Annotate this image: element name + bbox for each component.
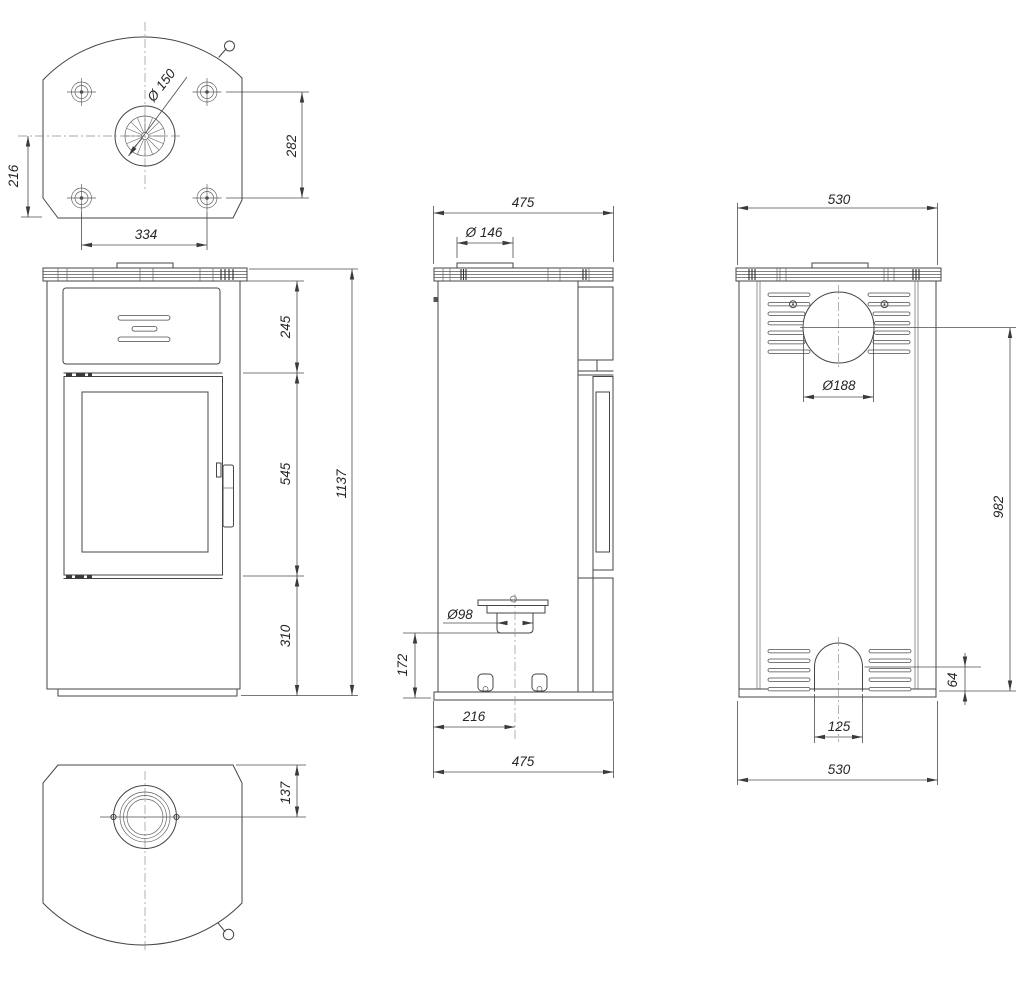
- dim-label-475-top: 475: [512, 195, 535, 210]
- dim-label-530-bottom: 530: [828, 762, 851, 777]
- top-view-outline: [43, 37, 242, 218]
- knob-icon: [223, 929, 233, 939]
- dim-label-282: 282: [284, 134, 299, 158]
- side-top-panel: [578, 287, 613, 360]
- flue-collar-side: [457, 263, 513, 268]
- base-side: [434, 692, 613, 700]
- dim-label-216-side: 216: [462, 709, 486, 724]
- door-glass: [82, 392, 208, 552]
- bolt-hole: [67, 78, 96, 106]
- dim-label-flue-diameter: Ø 150: [144, 66, 179, 106]
- vent-slot: [118, 337, 170, 342]
- dim-label-245: 245: [278, 315, 293, 339]
- dim-label-98: Ø98: [446, 607, 473, 622]
- plinth-front: [58, 689, 237, 696]
- air-inlet: [478, 596, 548, 633]
- door-handle: [223, 465, 234, 527]
- knob-stem: [218, 923, 225, 932]
- lower-vent-slots: [768, 650, 911, 691]
- stove-body-front: [47, 281, 240, 689]
- dim-label-188: Ø188: [821, 378, 856, 393]
- flue-collar-back: [812, 263, 868, 268]
- dim-label-137: 137: [278, 781, 293, 804]
- dim-label-216: 216: [6, 164, 21, 188]
- bolt-hole: [67, 184, 96, 212]
- dim-label-475-bottom: 475: [512, 754, 535, 769]
- upper-vent-panel: [63, 288, 220, 364]
- side-bottom-panel: [593, 578, 613, 692]
- vent-slot: [132, 327, 157, 332]
- hinge-marks: [66, 373, 92, 377]
- drawing-sheet: Ø 150 216 282 334: [0, 0, 1024, 984]
- technical-drawing: Ø 150 216 282 334: [0, 0, 1024, 984]
- flue-collar-front: [117, 263, 173, 268]
- dim-label-1137: 1137: [334, 469, 349, 499]
- top-view: Ø 150 216 282 334: [6, 22, 309, 250]
- hinge-marks: [66, 575, 92, 579]
- foot-bracket: [532, 674, 547, 692]
- side-view: 475 Ø 146 Ø98 172 216 475: [395, 195, 614, 778]
- dim-label-146: Ø 146: [465, 225, 503, 240]
- bolt-hole: [193, 184, 222, 212]
- bottom-view: 137: [43, 765, 306, 952]
- bolt-hole: [193, 78, 222, 106]
- dim-label-545: 545: [278, 462, 293, 485]
- door-latch: [217, 463, 222, 477]
- dim-label-310: 310: [278, 624, 293, 647]
- knob-icon: [225, 41, 235, 51]
- dim-label-334: 334: [135, 227, 158, 242]
- front-view: 245 545 310 1137: [43, 263, 358, 696]
- knob-stem: [219, 49, 226, 57]
- dim-label-982: 982: [991, 495, 1006, 518]
- vent-slot: [118, 316, 170, 321]
- dim-label-64: 64: [945, 672, 960, 687]
- dim-label-125: 125: [828, 719, 851, 734]
- upper-vent-slots: [768, 293, 910, 353]
- back-view: 530 Ø188 982 64 125 530: [736, 192, 1016, 785]
- dim-label-172: 172: [395, 653, 410, 676]
- dim-label-530-top: 530: [828, 192, 851, 207]
- foot-bracket: [478, 674, 493, 692]
